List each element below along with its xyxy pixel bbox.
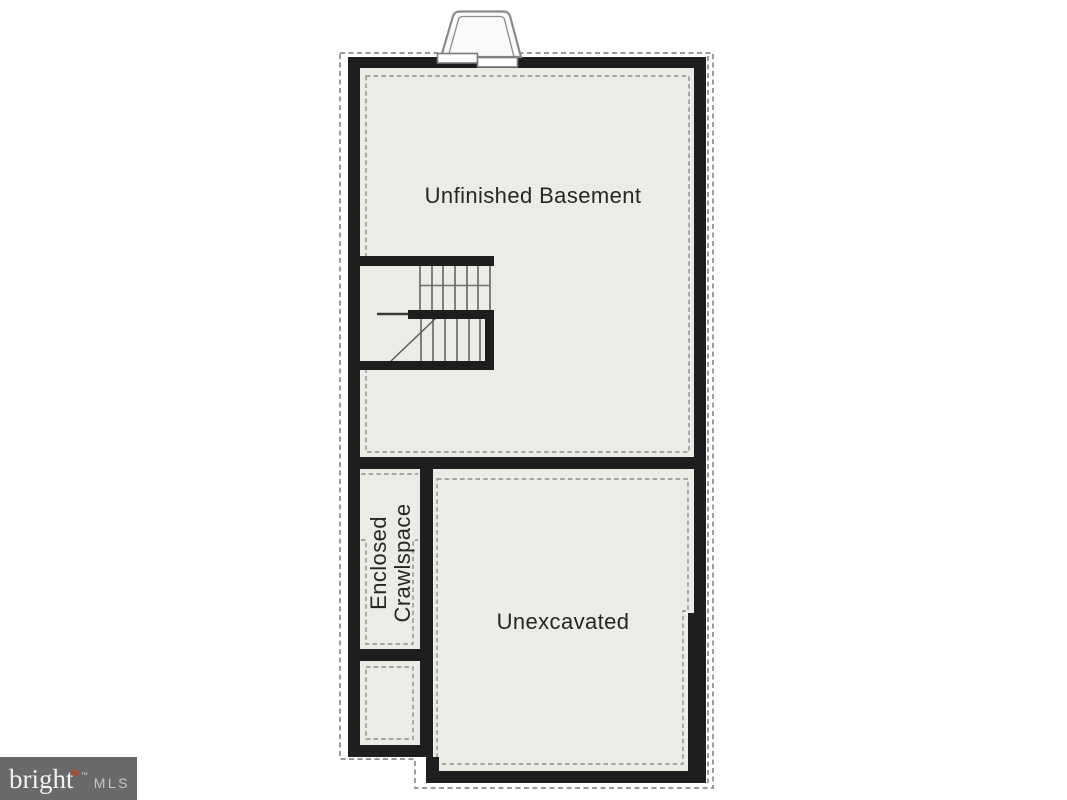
staircase	[360, 256, 494, 370]
brand-suffix: MLS	[94, 775, 130, 791]
wall-basement-bottom	[348, 457, 706, 469]
brand-wordmark: bright	[9, 764, 74, 794]
wall-small-room-bottom	[348, 745, 433, 757]
floorplan-drawing: Unfinished Basement Enclosed Crawlspace …	[0, 0, 1067, 800]
stair-wall-top	[360, 256, 494, 266]
label-unexcavated: Unexcavated	[497, 609, 630, 634]
wall-right	[694, 57, 706, 783]
floorplan-canvas: Unfinished Basement Enclosed Crawlspace …	[0, 0, 1067, 800]
wall-unexcavated-bottom	[426, 771, 706, 783]
wall-center-vertical	[420, 457, 433, 757]
star-icon: ✱	[71, 767, 80, 780]
door-panel-right	[478, 58, 518, 68]
stair-wall-mid	[408, 310, 494, 319]
stair-wall-right	[485, 310, 494, 370]
label-enclosed-crawlspace-line1: Enclosed	[366, 516, 391, 610]
wall-top	[348, 57, 706, 68]
wall-right-lower-thickening	[688, 613, 694, 783]
brightmls-watermark: bright ✱ ™ MLS	[0, 757, 137, 800]
building-floor-fill	[348, 57, 706, 783]
label-enclosed-crawlspace-line2: Crawlspace	[390, 504, 415, 623]
door-panel-left	[438, 54, 478, 64]
stoop-outer-outline	[441, 12, 521, 58]
stair-wall-bottom	[360, 361, 494, 370]
label-unfinished-basement: Unfinished Basement	[425, 183, 642, 208]
wall-crawlspace-divider	[348, 649, 433, 661]
trademark-symbol: ™	[81, 772, 88, 779]
entry-stoop	[438, 12, 522, 68]
